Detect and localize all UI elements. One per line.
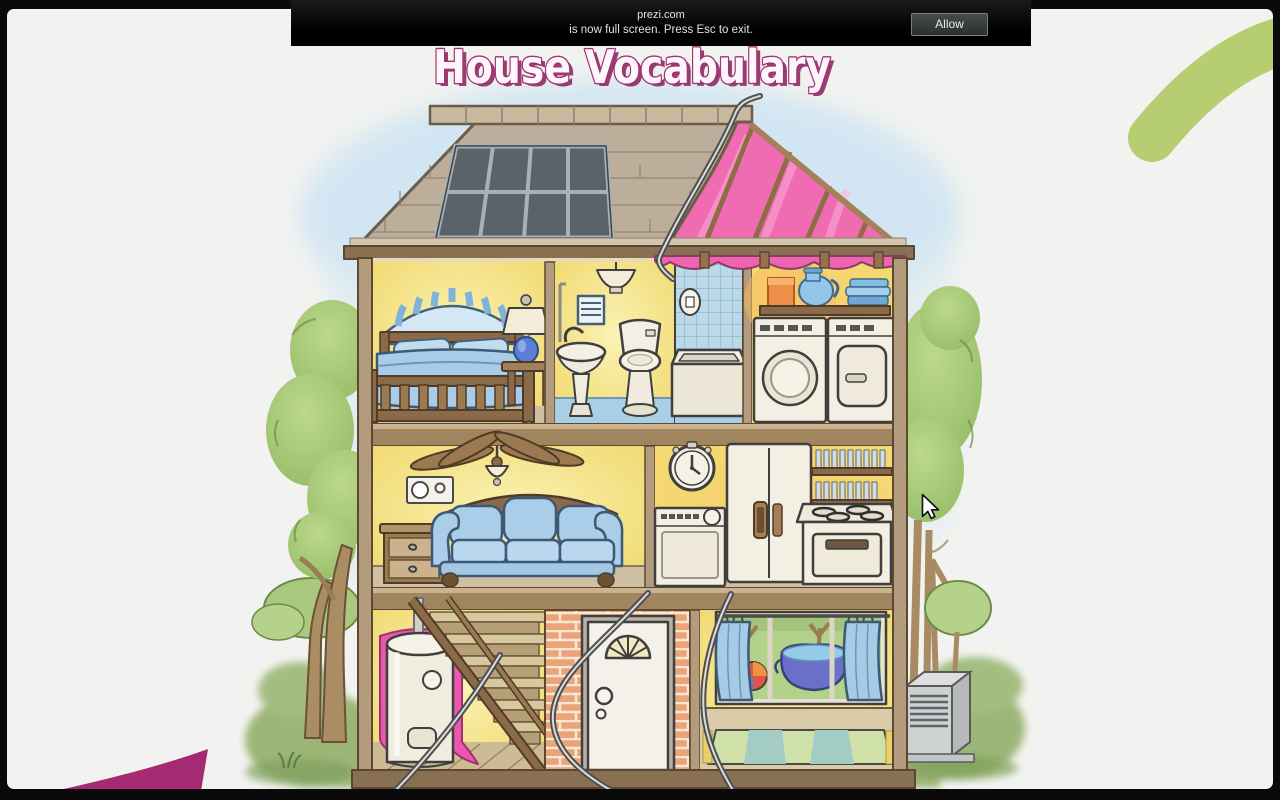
bathtub-basin [672, 350, 746, 416]
prezi-fullscreen-page: { "chrome": { "fullscreen_notice": { "si… [0, 0, 1280, 800]
dishwasher [655, 508, 725, 586]
bedroom [366, 262, 558, 429]
kitchen [655, 442, 897, 588]
couch [432, 495, 622, 587]
skylight [436, 146, 612, 238]
green-arc-decoration [1152, 38, 1280, 138]
striped-rug [703, 730, 895, 764]
mouse-cursor [921, 493, 941, 520]
roof-ridge [430, 106, 752, 124]
magenta-wedge-decoration [55, 749, 208, 791]
notification-site: prezi.com [637, 9, 685, 21]
front-entry [545, 610, 690, 772]
wall-vent [578, 296, 604, 324]
air-conditioner-unit [902, 672, 974, 762]
living-room [372, 426, 645, 588]
prezi-canvas[interactable]: House Vocabulary House Vocabulary [0, 0, 1280, 800]
laundry-room [744, 258, 894, 424]
dryer [828, 318, 894, 422]
front-door [582, 616, 674, 770]
fullscreen-notification-bar: prezi.com is now full screen. Press Esc … [291, 0, 1031, 46]
backyard-window [716, 612, 890, 704]
wall-clock [670, 442, 714, 490]
curtain-right [844, 622, 882, 700]
shower [672, 262, 746, 424]
slide-title-group: House Vocabulary House Vocabulary [433, 40, 835, 97]
refrigerator [727, 444, 811, 582]
playroom [700, 610, 895, 772]
curtain-left [716, 622, 752, 700]
washer [754, 318, 826, 422]
wall-thermostat [407, 477, 453, 503]
slide-title: House Vocabulary [433, 40, 831, 94]
stove [797, 504, 897, 584]
bathroom [555, 262, 675, 424]
allow-button[interactable]: Allow [911, 13, 988, 36]
basement-utility [372, 598, 560, 780]
small-right-tree-foliage [925, 581, 991, 635]
house-cutaway [344, 106, 915, 788]
toilet [620, 320, 660, 416]
